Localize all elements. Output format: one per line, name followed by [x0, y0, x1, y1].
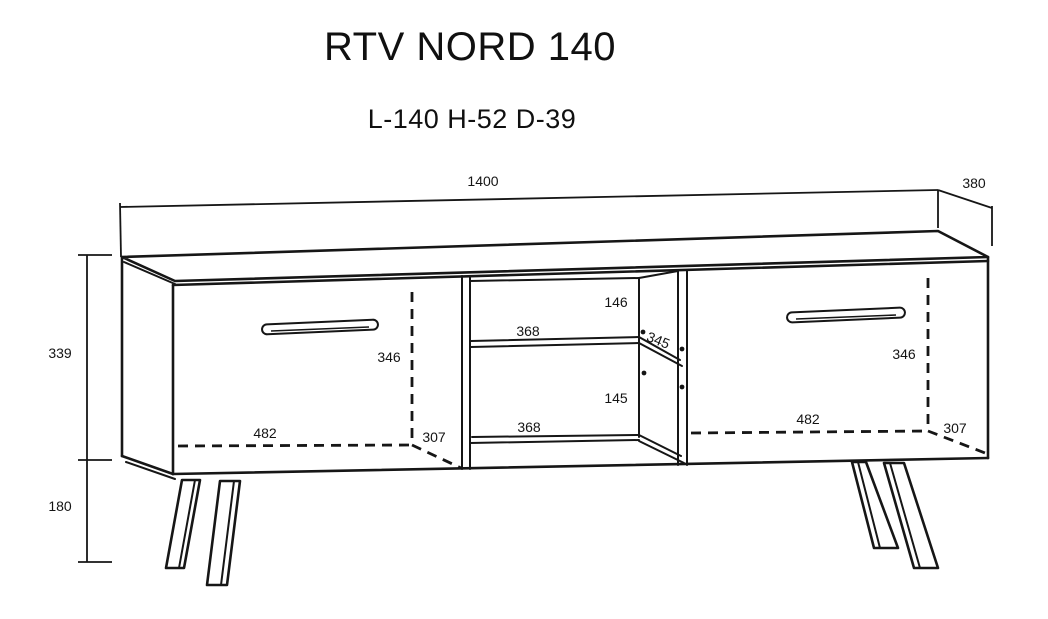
page-title: RTV NORD 140	[324, 25, 616, 69]
dim-lower-compartment-height: 145	[604, 390, 628, 406]
floor-front-edge	[470, 440, 639, 443]
dim-overall-width: 1400	[467, 173, 498, 189]
shelf-pin-dot	[680, 385, 685, 390]
width-dimension-line	[120, 190, 938, 207]
shelf-front-bottom-edge	[471, 343, 639, 347]
dim-right-door-height: 346	[892, 346, 916, 362]
dim-lower-compartment-width: 368	[517, 419, 541, 435]
shelf-pin-dot	[680, 347, 685, 352]
dim-leg-height: 180	[48, 498, 72, 514]
left-door	[178, 292, 461, 468]
furniture-dimension-diagram: RTV NORD 140 L-140 H-52 D-39 1400 380 33…	[0, 0, 1048, 619]
left-side-bottom-edge	[122, 456, 173, 474]
dim-right-door-width: 482	[796, 411, 820, 427]
floor-right-top-slant	[639, 435, 681, 456]
legs	[166, 462, 938, 585]
open-shelf-section	[470, 271, 684, 463]
dim-carcass-height: 339	[48, 345, 72, 361]
opening-ceiling-edge	[470, 278, 639, 281]
dim-right-door-depth: 307	[943, 420, 967, 436]
floor-back-edge	[472, 435, 639, 437]
shelf-pin-dot	[641, 330, 646, 335]
dim-left-door-height: 346	[377, 349, 401, 365]
dim-left-door-width: 482	[253, 425, 277, 441]
depth-dimension-line	[938, 190, 992, 208]
dim-upper-compartment-height: 146	[604, 294, 628, 310]
shelf-pin-dot	[642, 371, 647, 376]
dim-left-door-depth: 307	[422, 429, 446, 445]
left-side-bottom-inner-edge	[126, 462, 175, 479]
diagram-page: RTV NORD 140 L-140 H-52 D-39 1400 380 33…	[0, 0, 1048, 619]
left-door-hidden-depth-line	[412, 445, 461, 468]
left-door-hidden-width-line	[178, 445, 412, 446]
shelf-front-top-edge	[471, 337, 639, 341]
right-door	[691, 278, 985, 453]
front-right-leg	[884, 463, 938, 568]
width-dimension-left-tick	[120, 203, 121, 257]
dim-upper-compartment-width: 368	[516, 323, 540, 339]
right-door-hidden-width-line	[691, 431, 928, 433]
dim-overall-depth: 380	[962, 175, 986, 191]
page-subtitle: L-140 H-52 D-39	[368, 104, 577, 134]
back-left-leg	[166, 480, 200, 568]
